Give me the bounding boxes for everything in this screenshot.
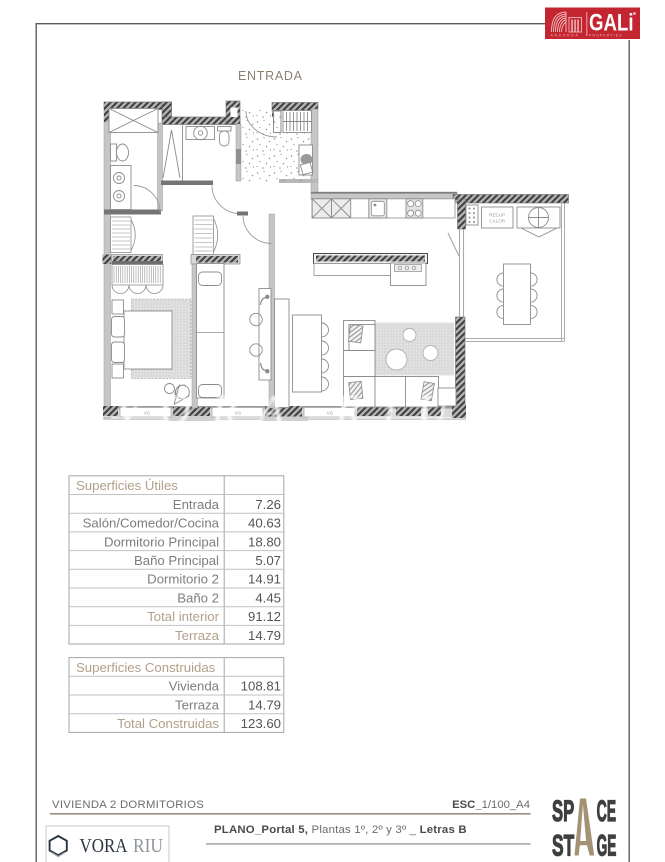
svg-text:Salón/Comedor/Cocina: Salón/Comedor/Cocina [83, 516, 220, 531]
svg-text:Dormitorio 2: Dormitorio 2 [147, 572, 219, 587]
svg-text:ESC_1/100_A4: ESC_1/100_A4 [452, 799, 530, 811]
svg-text:PROPERTIES: PROPERTIES [589, 33, 623, 37]
svg-text:RECUP: RECUP [489, 213, 505, 218]
svg-text:Total interior: Total interior [147, 609, 219, 624]
svg-text:Superficies Construidas: Superficies Construidas [76, 660, 216, 675]
svg-text:108.81: 108.81 [241, 679, 281, 694]
svg-text:Dormitorio Principal: Dormitorio Principal [104, 534, 219, 549]
svg-text:GE: GE [597, 830, 617, 862]
svg-text:CE: CE [597, 795, 617, 828]
svg-text:5.07: 5.07 [255, 553, 281, 568]
svg-text:Entrada: Entrada [173, 497, 220, 512]
svg-text:CALOR: CALOR [489, 219, 506, 224]
svg-text:Baño Principal: Baño Principal [134, 553, 219, 568]
svg-text:VIVIENDA 2 DORMITORIOS: VIVIENDA 2 DORMITORIOS [52, 799, 204, 811]
svg-text:123.60: 123.60 [241, 716, 281, 731]
svg-text:14.79: 14.79 [248, 697, 281, 712]
svg-text:14.79: 14.79 [248, 628, 281, 643]
svg-text:14.91: 14.91 [248, 572, 281, 587]
svg-text:ENTRADA: ENTRADA [238, 69, 303, 83]
svg-text:Baño 2: Baño 2 [177, 590, 219, 605]
svg-text:Total Construidas: Total Construidas [117, 716, 219, 731]
svg-text:Vivienda: Vivienda [169, 679, 220, 694]
svg-text:SP: SP [552, 795, 574, 828]
svg-text:VORA: VORA [80, 836, 128, 857]
svg-text:91.12: 91.12 [248, 609, 281, 624]
svg-text:Superficies Útiles: Superficies Útiles [76, 478, 178, 493]
svg-text:RIU: RIU [133, 836, 163, 857]
svg-text:VORA RIU: VORA RIU [115, 388, 469, 434]
svg-text:Terraza: Terraza [175, 697, 220, 712]
svg-text:40.63: 40.63 [248, 516, 281, 531]
svg-text:Terraza: Terraza [175, 628, 220, 643]
svg-text:PLANO_Portal 5, Plantas 1º, 2: PLANO_Portal 5, Plantas 1º, 2º y 3º _ Le… [214, 824, 467, 836]
svg-text:7.26: 7.26 [255, 497, 281, 512]
svg-text:ANDORRA: ANDORRA [551, 33, 580, 37]
svg-text:18.80: 18.80 [248, 534, 281, 549]
svg-text:ST: ST [552, 830, 574, 862]
svg-text:4.45: 4.45 [255, 590, 281, 605]
